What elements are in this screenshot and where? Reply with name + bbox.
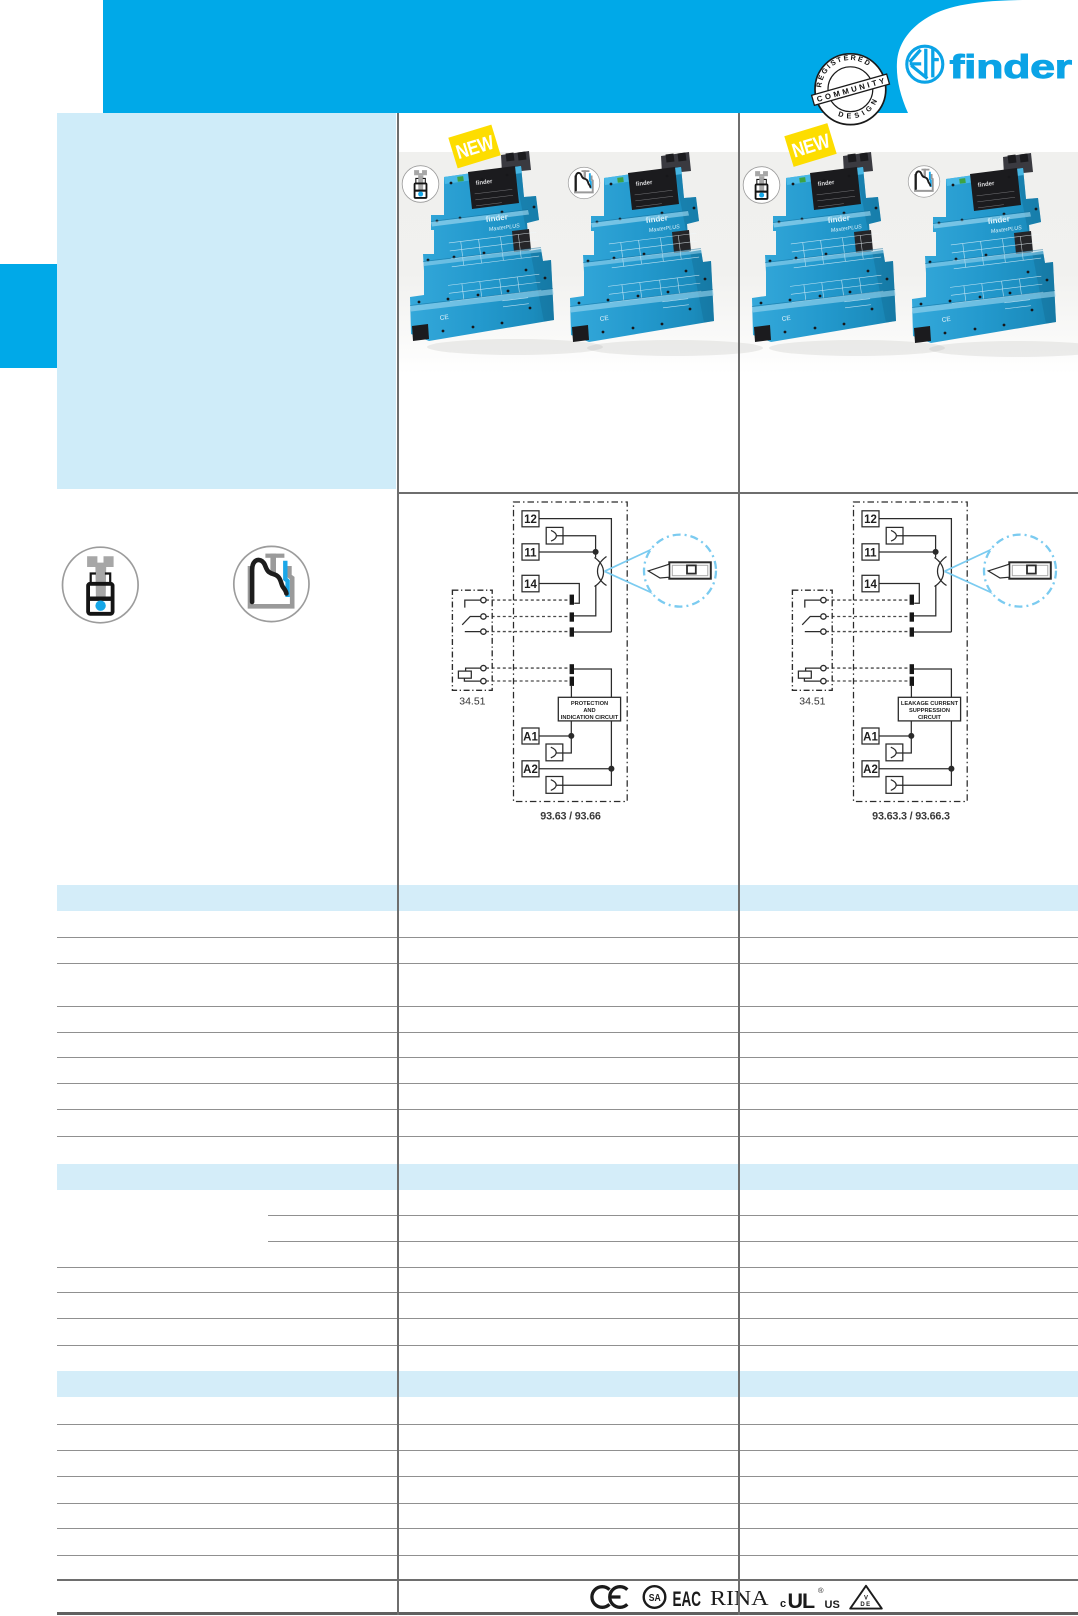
svg-text:AND: AND — [583, 708, 595, 714]
svg-text:12: 12 — [524, 514, 537, 526]
svg-text:®: ® — [818, 1586, 824, 1595]
svg-text:14: 14 — [524, 579, 537, 591]
svg-text:A1: A1 — [863, 731, 878, 743]
svg-text:DE: DE — [860, 1602, 871, 1608]
svg-text:34.51: 34.51 — [459, 696, 485, 708]
svg-text:12: 12 — [864, 514, 877, 526]
svg-text:PROTECTION: PROTECTION — [571, 701, 608, 707]
svg-text:34.51: 34.51 — [799, 696, 825, 708]
svg-text:LEAKAGE CURRENT: LEAKAGE CURRENT — [901, 701, 959, 707]
svg-text:US: US — [825, 1599, 840, 1611]
svg-text:UL: UL — [788, 1589, 816, 1613]
svg-text:c: c — [780, 1598, 786, 1610]
svg-text:A2: A2 — [523, 764, 538, 776]
svg-text:INDICATION CIRCUIT: INDICATION CIRCUIT — [561, 715, 619, 721]
svg-text:CIRCUIT: CIRCUIT — [918, 715, 942, 721]
svg-text:93.63 / 93.66: 93.63 / 93.66 — [540, 811, 601, 823]
svg-text:EAC: EAC — [673, 1588, 702, 1611]
svg-text:SA: SA — [649, 1593, 661, 1604]
svg-text:14: 14 — [864, 579, 877, 591]
svg-text:11: 11 — [524, 547, 537, 559]
svg-text:11: 11 — [864, 547, 877, 559]
svg-text:93.63.3 / 93.66.3: 93.63.3 / 93.66.3 — [872, 811, 950, 823]
svg-text:V: V — [864, 1596, 868, 1602]
svg-text:A1: A1 — [523, 731, 538, 743]
svg-text:RINA: RINA — [710, 1586, 769, 1610]
svg-text:finder: finder — [950, 49, 1072, 86]
svg-text:A2: A2 — [863, 764, 878, 776]
svg-text:SUPPRESSION: SUPPRESSION — [909, 708, 950, 714]
